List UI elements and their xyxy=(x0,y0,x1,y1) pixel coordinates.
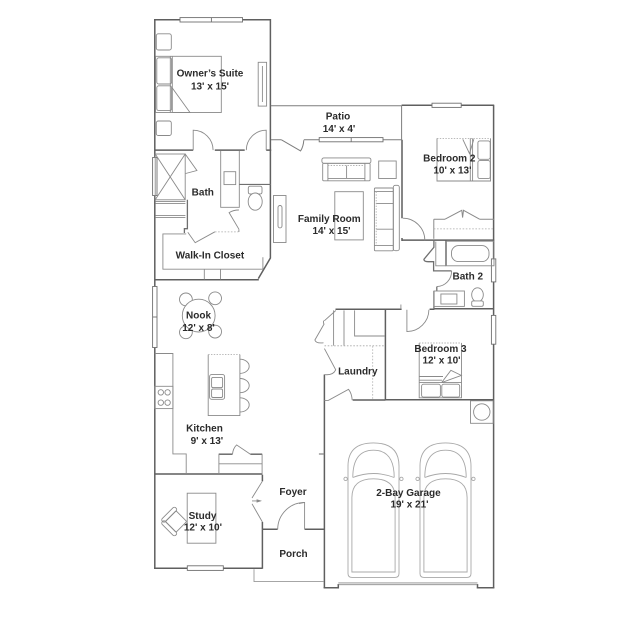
svg-text:19' x 21': 19' x 21' xyxy=(390,500,428,511)
svg-text:Kitchen: Kitchen xyxy=(186,424,223,435)
svg-text:Walk-In Closet: Walk-In Closet xyxy=(176,251,245,262)
svg-text:9' x 13': 9' x 13' xyxy=(191,436,224,447)
svg-text:10' x 13': 10' x 13' xyxy=(433,166,471,177)
svg-text:14' x 4': 14' x 4' xyxy=(323,124,356,135)
svg-text:Porch: Porch xyxy=(279,549,307,560)
svg-text:Bedroom 2: Bedroom 2 xyxy=(423,154,476,165)
svg-text:Bath 2: Bath 2 xyxy=(453,271,484,282)
svg-text:Nook: Nook xyxy=(186,311,211,322)
svg-text:Bedroom 3: Bedroom 3 xyxy=(414,344,467,355)
svg-text:12' x 8': 12' x 8' xyxy=(182,323,215,334)
svg-text:Family Room: Family Room xyxy=(298,214,361,225)
svg-text:12' x 10': 12' x 10' xyxy=(422,356,460,367)
svg-text:Owner’s Suite: Owner’s Suite xyxy=(177,69,244,80)
svg-text:Laundry: Laundry xyxy=(338,367,378,378)
svg-text:Bath: Bath xyxy=(192,188,214,199)
svg-text:12' x 10': 12' x 10' xyxy=(184,523,222,534)
svg-text:Patio: Patio xyxy=(326,112,350,123)
svg-text:Study: Study xyxy=(189,511,217,522)
svg-text:2-Bay Garage: 2-Bay Garage xyxy=(376,488,441,499)
svg-text:14' x 15': 14' x 15' xyxy=(312,226,350,237)
svg-text:13' x 15': 13' x 15' xyxy=(191,82,229,93)
svg-text:Foyer: Foyer xyxy=(279,487,306,498)
